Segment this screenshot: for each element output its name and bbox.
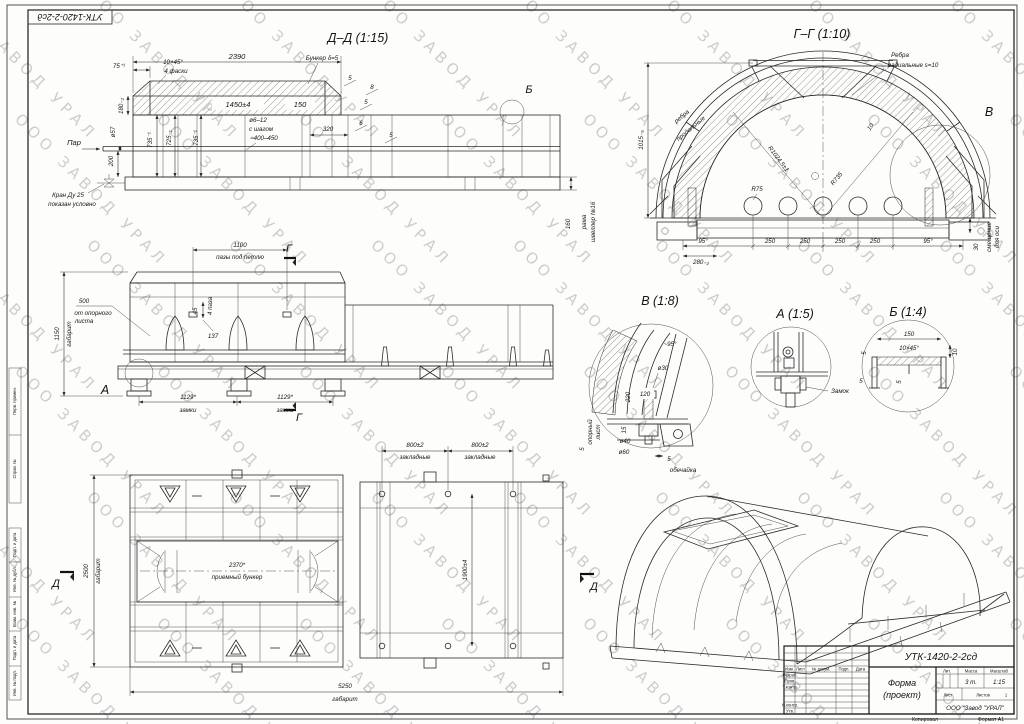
dim: 5 <box>389 132 393 139</box>
dim: 220 <box>625 391 632 403</box>
view-gg: Г–Г (1:10) <box>638 27 1001 266</box>
tb-header: Дата <box>856 667 866 672</box>
note: опорный <box>587 419 594 445</box>
dim: 5 <box>364 99 368 106</box>
note: Замок <box>831 388 850 395</box>
corner-stamp: УТК-1420-2-2сд <box>28 10 112 24</box>
tb-name2: (проект) <box>883 690 921 700</box>
dim: габарит <box>66 321 73 346</box>
note: обечайка <box>670 467 697 474</box>
tb-row: Н.контр. <box>782 703 798 708</box>
view-isometric <box>610 496 1010 674</box>
margin-label: Справ. № <box>12 459 17 479</box>
detail-marker-a: А <box>100 383 109 397</box>
tb-row: Пров. <box>784 679 795 684</box>
tb-row: Т.контр. <box>782 685 797 690</box>
dim: 4 фаски <box>164 68 188 75</box>
drawing-sheet: ООО ЗАВОД УРАЛООО ЗАВОД УРАЛООО ЗАВОД УР… <box>0 0 1024 724</box>
dim: 75⁺¹ <box>113 63 125 70</box>
margin-label: Подп. и дата <box>12 532 17 557</box>
dim: 8 <box>370 84 374 91</box>
dim: ø60 <box>619 449 630 456</box>
dim: 2370* <box>228 562 246 569</box>
tb-scale-value: 1:15 <box>993 679 1006 686</box>
dim: 735⁻¹ <box>147 132 154 148</box>
view-plan-left: 2370* приемный бункер Д Д 2500 габарит 5… <box>50 470 598 703</box>
tb-row: Утв. <box>786 709 794 714</box>
tb-code: УТК-1420-2-2сд <box>904 652 978 663</box>
dim: 150 <box>294 100 307 109</box>
note: для оси <box>994 225 1001 247</box>
dim: 150 <box>904 331 915 338</box>
dim: ≈400–450 <box>250 135 278 142</box>
margin-label: Взам. инв. № <box>12 601 17 627</box>
dim: 725₋₁ <box>166 130 173 146</box>
dim: 250 <box>799 238 811 245</box>
tb-header: Изм. <box>785 667 794 672</box>
dim: 5 <box>667 456 671 463</box>
dim: 250 <box>869 238 881 245</box>
detail-v: В (1:8) ~95° ø30 120 220 15 ø40 <box>579 294 713 474</box>
note: приемный бункер <box>212 574 263 581</box>
dim: ø40 <box>620 438 631 445</box>
dim: 120 <box>640 391 651 398</box>
dim: 1129* <box>277 394 293 401</box>
dim: ~95° <box>664 341 677 348</box>
view-side: 1100 пазы под петлю 45 4 паза 137 500 от… <box>54 242 553 424</box>
dim: закладные <box>464 454 496 461</box>
section-marker-d: Д <box>50 578 60 590</box>
section-marker-d: Д <box>588 581 598 593</box>
footer-format: Формат А1 <box>978 717 1004 723</box>
detail-marker-b: Б <box>525 84 532 96</box>
section-marker-g: Г <box>286 243 293 255</box>
tb-scale: Масштаб <box>990 669 1009 674</box>
note: радиальные s=10 <box>887 62 939 69</box>
dim: замки <box>179 407 197 414</box>
dim: R1024,5±1 <box>766 145 790 173</box>
dim: 735⁻¹ <box>193 130 200 146</box>
dim: 5 <box>861 351 868 355</box>
tb-mass: Масса <box>965 669 978 674</box>
detail-a: А (1:5) Замок <box>751 307 850 407</box>
dim: 800±2 <box>471 442 489 449</box>
note: показан условно <box>48 201 96 208</box>
note: листа <box>74 318 94 325</box>
view-dd: Д–Д (1:15) 1450±4 150 <box>48 31 597 242</box>
tb-sheets-value: 1 <box>1005 693 1008 698</box>
tb-header: Подп. <box>838 667 849 672</box>
margin-label: Подп. и дата <box>12 635 17 660</box>
dim: 4 паза <box>207 296 214 315</box>
dim: 2390 <box>228 52 247 61</box>
view-dd-title: Д–Д (1:15) <box>326 31 389 45</box>
dim: Бункер δ=5 <box>306 55 339 62</box>
detail-b-title: Б (1:4) <box>889 305 926 319</box>
dim: 1900±4 <box>462 559 469 580</box>
dim: 10×45° <box>163 59 183 66</box>
crane-symbol <box>88 174 125 193</box>
dim: 95° <box>923 238 933 245</box>
tb-row: Разраб. <box>782 673 797 678</box>
dim: 10 <box>866 122 876 132</box>
dim: 1100 <box>233 242 247 249</box>
dim: 1129* <box>180 394 196 401</box>
dim: пазы под петлю <box>216 254 264 261</box>
note: швеллер №16 <box>590 201 597 242</box>
dim: 1150 <box>54 327 61 341</box>
dim: 137 <box>208 333 219 340</box>
dim: габарит <box>95 558 102 583</box>
tb-header: Лист <box>796 667 805 672</box>
tb-sheet: Лист <box>943 693 952 698</box>
corner-code: УТК-1420-2-2сд <box>37 12 103 22</box>
detail-b: Б (1:4) 150 10×45° 10 5 5 5 <box>859 305 959 412</box>
dim: габарит <box>332 696 357 703</box>
dim: ø6–12 <box>249 117 267 124</box>
dim: 2500 <box>83 564 90 579</box>
section-marker-g: Г <box>296 412 303 424</box>
dim: 500 <box>79 298 90 305</box>
dim: R75 <box>751 186 763 193</box>
dim: R735 <box>829 171 844 187</box>
dim: 10 <box>952 348 959 355</box>
drawing-canvas: УТК-1420-2-2сд Перв. примен. Справ. № По… <box>0 0 1024 724</box>
tb-mass-value: 3 т. <box>965 679 977 686</box>
tb-company: ООО "Завод "УРАЛ" <box>946 705 1004 712</box>
view-gg-title: Г–Г (1:10) <box>794 27 851 41</box>
dim: 250 <box>764 238 776 245</box>
note: Кран Ду 25 <box>52 192 84 199</box>
dim: с шагом <box>249 126 274 133</box>
dim: 45 <box>192 307 199 314</box>
margin-label: Инв. № дубл. <box>12 566 17 592</box>
dim: ø57 <box>110 126 117 137</box>
dim: 800±2 <box>406 442 424 449</box>
tb-name: Форма <box>888 678 916 688</box>
dim: 320 <box>323 126 334 133</box>
note: ребра <box>672 108 691 125</box>
tb-header: № докум. <box>812 667 830 672</box>
note: рама <box>581 214 588 230</box>
dim: 95° <box>698 238 708 245</box>
tb-sheets: Листов <box>976 693 990 698</box>
note: смещение <box>986 222 993 252</box>
dim: 10×45° <box>899 345 919 352</box>
dim: 5 <box>579 447 586 451</box>
dim: 6 <box>359 120 363 127</box>
dim: 30 <box>973 243 980 250</box>
note: лист <box>595 424 602 440</box>
detail-marker-v: В <box>985 105 993 119</box>
dim: 5 <box>348 75 352 82</box>
dim: ø30 <box>658 365 669 372</box>
dim: 250 <box>834 238 846 245</box>
dim: 1450±4 <box>226 100 251 109</box>
dim: 5250 <box>338 683 352 690</box>
tb-lit: Лит. <box>943 669 951 674</box>
note: Ребра <box>891 52 909 59</box>
view-plan-right: 800±2 закладные 800±2 закладные 1900±4 <box>360 442 563 669</box>
margin-labels: Перв. примен. Справ. № Подп. и дата Инв.… <box>9 368 21 700</box>
detail-a-title: А (1:5) <box>775 307 814 321</box>
title-block: УТК-1420-2-2сд Форма (проект) ООО "Завод… <box>782 646 1014 723</box>
label-par: Пар <box>67 138 81 147</box>
margin-label: Инв. № подл. <box>12 670 17 696</box>
margin-label: Перв. примен. <box>12 387 17 415</box>
dim: 280₋₂ <box>692 259 710 266</box>
dim: 1015₋₅ <box>638 130 645 150</box>
dim: 180₋₂ <box>118 97 125 114</box>
dim: 200 <box>108 155 115 167</box>
note: от опорного <box>74 310 112 317</box>
dim: 5 <box>896 380 903 384</box>
dim: закладные <box>399 454 431 461</box>
detail-v-title: В (1:8) <box>641 294 679 308</box>
footer-copied: Копировал <box>912 717 938 723</box>
dim: 160 <box>565 218 572 229</box>
dim: 5 <box>859 378 863 385</box>
dim: 15 <box>621 426 628 433</box>
